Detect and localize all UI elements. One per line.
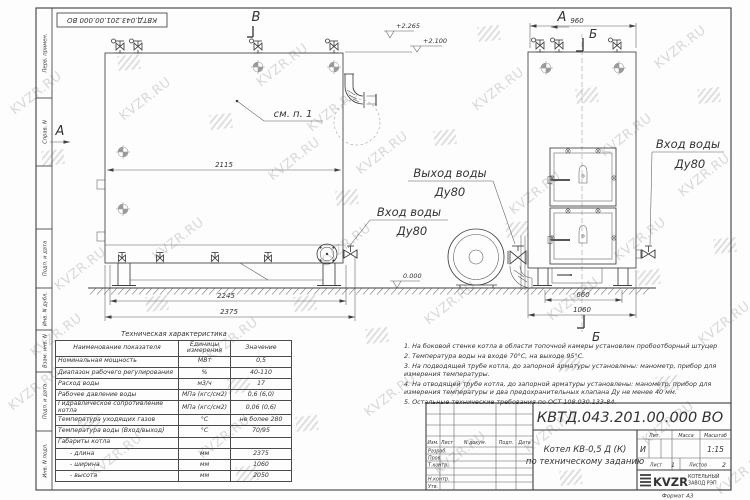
- drain-valve-icon: [118, 253, 126, 264]
- valve-icon: [551, 38, 564, 52]
- table-row: Рабочее давление водыМПа (кгс/см2)0,6 (6…: [56, 390, 292, 401]
- supports: [112, 263, 341, 286]
- margin-label-vzam: Взам. инв. N: [43, 334, 49, 368]
- table-row: Габариты котла: [56, 437, 292, 448]
- inlet-valve-icon: [641, 246, 655, 259]
- side-stub: [97, 180, 105, 189]
- center-of-mass-icon: [116, 145, 130, 159]
- valve-icon: [112, 39, 125, 53]
- note-item: 2. Температура воды на входе 70°С, на вы…: [404, 352, 728, 360]
- tb-title-line2: по техническому заданию: [526, 457, 644, 467]
- tb-col-podp: Подп.: [499, 440, 514, 446]
- center-of-mass-icon: [539, 61, 553, 75]
- center-of-mass-icon: [612, 61, 626, 75]
- tb-scale-value: 1:15: [707, 445, 724, 454]
- tb-row-tkontr: Т.контр.: [428, 463, 449, 469]
- tb-company-name: KVZR: [653, 475, 688, 489]
- tb-lit-value: И: [640, 445, 646, 454]
- table-row: Диапазон рабочего регулирования%40-110: [56, 367, 292, 378]
- center-of-mass-icon: [116, 202, 130, 216]
- fan-blower: [448, 229, 532, 290]
- dim-960-label: 960: [570, 17, 584, 25]
- tb-title-line1: Котел КВ-0,5 Д (К): [544, 445, 627, 455]
- table-title: Техническая характеристика: [55, 330, 293, 338]
- tb-row-prov: Пров.: [428, 456, 442, 462]
- table-row: Расход водым3/ч17: [56, 378, 292, 389]
- elevation-marks: +2.265 +2.100 0.000: [345, 22, 447, 288]
- boiler-side-view: см. п. 1 2115: [97, 39, 380, 321]
- drain-valve-icon: [156, 253, 164, 264]
- title-block: Изм. Лист N докум. Подп. Дата Разраб. Пр…: [426, 403, 731, 500]
- bolt-icon: [612, 236, 616, 240]
- bolt-icon: [596, 149, 600, 153]
- burner-flange: [317, 244, 337, 264]
- valve-icon: [532, 38, 545, 52]
- note-item: 3. На подводящей трубе котла, до запорно…: [404, 362, 728, 379]
- view-v-label: В: [252, 10, 261, 25]
- tb-col-data: Дата: [517, 440, 530, 446]
- tb-sheet-label: Лист: [649, 463, 662, 469]
- valve-icon: [250, 39, 263, 53]
- tb-row-nkontr: Н.контр.: [428, 477, 449, 483]
- tb-doc-number: КВТД.043.201.00.000 ВО: [537, 410, 723, 426]
- tb-scale-label: Масштаб: [704, 433, 727, 439]
- outlet-dn-label: Ду80: [434, 185, 465, 199]
- margin-label-sprav: Справ. N: [43, 120, 49, 144]
- inlet-dn-label: Ду80: [396, 224, 427, 238]
- spec-table-body: Номинальная мощностьМВт0,5Диапазон рабоч…: [56, 356, 292, 482]
- col-header-value: Значение: [231, 340, 292, 356]
- elevation-2265: +2.265: [396, 22, 420, 30]
- margin-label-invdubl: Инв. N дубл.: [43, 292, 49, 326]
- margin-label-podp1: Подп. и дата: [43, 241, 49, 276]
- valve-icon: [609, 38, 622, 52]
- dim-2375-label: 2375: [220, 308, 238, 316]
- technical-characteristics: Техническая характеристика Наименование …: [55, 330, 293, 482]
- bolt-icon: [612, 176, 616, 180]
- note-item: 1. На боковой стенке котла в области топ…: [404, 342, 728, 350]
- table-row: - ширинамм1060: [56, 460, 292, 471]
- view-a-left-label: А: [55, 124, 65, 139]
- boiler-front-view: 960 660 1060: [528, 17, 655, 332]
- col-header-units: Единицы измерения: [179, 340, 231, 356]
- top-stamp-number: КВТД.043.201.00.000 ВО: [67, 16, 157, 24]
- tb-col-izm: Изм.: [427, 440, 438, 446]
- valve-icon: [130, 39, 143, 53]
- bolt-icon: [596, 209, 600, 213]
- flue-elbow: [334, 74, 380, 145]
- view-a-top-label: А: [557, 10, 567, 25]
- elevation-zero: 0.000: [403, 272, 422, 280]
- elevation-2100: +2.100: [423, 37, 447, 45]
- note-item: 5. Остальные технические требования по О…: [404, 398, 728, 406]
- tb-row-utv: Утв.: [428, 484, 438, 490]
- ground-line: [88, 288, 656, 295]
- margin-label-invpodl: Инв. N подл.: [43, 443, 49, 477]
- tb-company-sub1: КОТЕЛЬНЫЙ: [688, 473, 720, 480]
- table-row: - высотамм2050: [56, 471, 292, 482]
- tb-sheets-label: Листов: [688, 463, 707, 469]
- tb-col-ndokum: N докум.: [464, 440, 486, 446]
- inlet2-label: Вход воды: [656, 137, 720, 151]
- tb-lit-label: Лит.: [648, 433, 660, 439]
- drawing-sheet: KVZR.RUKVZR.RUKVZR.RUKVZR.RUKVZR.RUKVZR.…: [0, 0, 750, 500]
- table-row: Температура уходящих газов°Сне более 280: [56, 415, 292, 426]
- format-label: Формат А3: [662, 494, 694, 500]
- bolt-icon: [566, 149, 570, 153]
- tb-sheet-value: 1: [671, 462, 675, 469]
- center-of-mass-icon: [251, 60, 265, 74]
- outlet-label: Выход воды: [413, 166, 486, 180]
- spec-table: Наименование показателя Единицы измерени…: [55, 340, 292, 483]
- margin-label-perv: Перв. примен.: [43, 34, 49, 73]
- table-row: - длинамм2375: [56, 448, 292, 459]
- dim-2115-label: 2115: [215, 161, 233, 169]
- tb-sheets-value: 2: [722, 462, 726, 469]
- table-row: Температура воды (Вход/выход)°С70/95: [56, 426, 292, 437]
- kvzr-logo: KVZR КОТЕЛЬНЫЙ ЗАВОД РЭП: [640, 473, 720, 489]
- tb-row-razrab: Разраб.: [428, 449, 447, 455]
- side-stub: [97, 232, 105, 241]
- section-b-top-label: Б: [589, 27, 597, 41]
- drain-valve-icon: [211, 253, 219, 264]
- center-of-mass-icon: [327, 60, 341, 74]
- inlet-label: Вход воды: [377, 205, 441, 219]
- tb-col-list: Лист: [440, 440, 453, 446]
- col-header-name: Наименование показателя: [56, 340, 179, 356]
- tb-company-sub2: ЗАВОД РЭП: [688, 481, 717, 487]
- notes: 1. На боковой стенке котла в области топ…: [404, 342, 728, 408]
- inlet2-dn-label: Ду80: [674, 157, 705, 171]
- lower-door: [548, 208, 616, 264]
- drain-valve-icon: [264, 253, 272, 264]
- dim-2245-label: 2245: [217, 292, 235, 300]
- note-item: 4. На отводящей трубе котла, до запорной…: [404, 380, 728, 397]
- valve-icon: [326, 39, 339, 53]
- table-row: Гидравлическое сопротивление котлаМПа (к…: [56, 401, 292, 415]
- table-row: Номинальная мощностьМВт0,5: [56, 356, 292, 367]
- bolt-icon: [566, 209, 570, 213]
- tb-mass-label: Масса: [678, 433, 693, 439]
- dim-660-label: 660: [576, 291, 590, 299]
- dim-1060-label: 1060: [573, 306, 591, 314]
- see-note-label: см. п. 1: [274, 109, 313, 120]
- margin-label-podp2: Подп. и дата: [43, 384, 49, 419]
- pipe-labels: Выход воды Ду80 Вход воды Ду80 Вход воды…: [348, 137, 724, 248]
